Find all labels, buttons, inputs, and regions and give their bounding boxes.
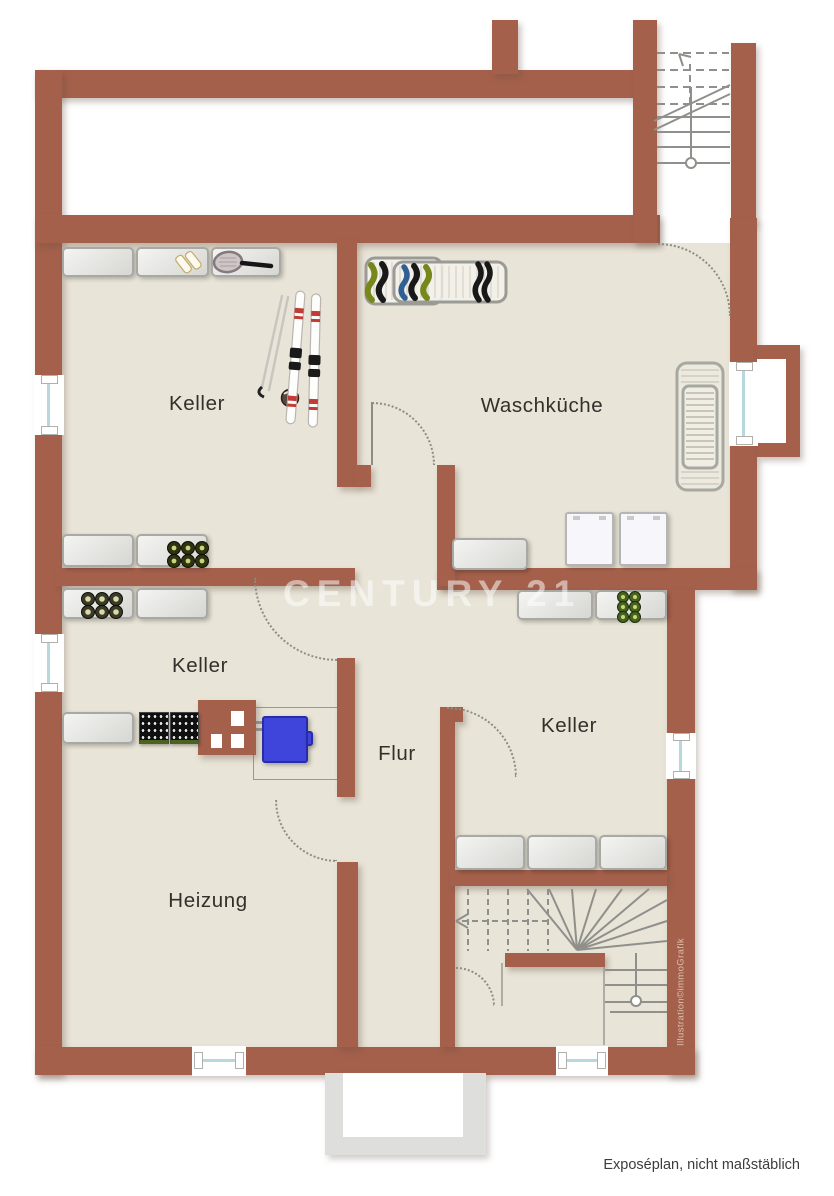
window-sill xyxy=(41,683,58,692)
window-sill xyxy=(235,1052,244,1069)
room-label-keller-right: Keller xyxy=(541,714,597,738)
window-sill xyxy=(558,1052,567,1069)
washing-machine-icon xyxy=(619,512,668,566)
wall xyxy=(492,20,518,74)
door-leaf xyxy=(371,402,373,465)
shelf xyxy=(62,247,134,277)
window-glazing xyxy=(47,642,50,684)
shelf xyxy=(211,247,281,277)
window-sill xyxy=(673,771,690,779)
chimney-flue xyxy=(231,734,244,748)
wall xyxy=(450,870,667,886)
chimney-flue xyxy=(231,711,244,726)
wall xyxy=(355,465,371,487)
window-glazing xyxy=(564,1059,600,1062)
washer-knob xyxy=(653,516,660,520)
window-sill xyxy=(194,1052,203,1069)
stair-spine-wall xyxy=(505,953,605,967)
window-sill xyxy=(41,634,58,643)
exterior-lightwell-inner xyxy=(343,1073,463,1137)
room-label-heizung: Heizung xyxy=(168,889,247,913)
shelf xyxy=(62,588,134,619)
wall xyxy=(633,20,657,243)
room-label-keller-top-left: Keller xyxy=(169,392,225,416)
staircase-top-icon xyxy=(654,53,730,168)
window-glazing xyxy=(47,383,50,427)
shelf xyxy=(136,588,208,619)
wall xyxy=(731,43,756,223)
window-glazing xyxy=(200,1059,238,1062)
window-sill xyxy=(41,426,58,435)
window-glazing xyxy=(679,741,682,772)
lightwell-right-inner xyxy=(757,359,786,443)
window-sill xyxy=(597,1052,606,1069)
window-sill xyxy=(736,362,753,371)
chimney-flue xyxy=(211,734,222,748)
shelf xyxy=(136,534,208,567)
wall xyxy=(337,658,355,797)
shelf xyxy=(599,835,667,870)
shelf xyxy=(452,538,528,570)
washer-knob xyxy=(573,516,580,520)
illustration-credit: Illustration©immoGrafik xyxy=(676,938,687,1046)
window-glazing xyxy=(742,371,745,437)
beverage-crates-icon xyxy=(170,712,199,744)
floor-area-lower xyxy=(55,575,667,1055)
wall xyxy=(35,215,660,243)
window-sill xyxy=(736,436,753,445)
shelf xyxy=(62,712,134,744)
window-sill xyxy=(673,733,690,741)
chimney xyxy=(198,700,256,755)
shelf xyxy=(595,590,667,620)
shelf xyxy=(62,534,134,567)
watermark: CENTURY 21 xyxy=(283,573,581,615)
room-label-flur: Flur xyxy=(378,742,416,766)
shelf xyxy=(136,247,209,277)
void-room xyxy=(62,98,633,218)
shelf xyxy=(527,835,597,870)
washer-knob xyxy=(627,516,634,520)
oil-tank-nub xyxy=(306,731,313,746)
washing-machine-icon xyxy=(565,512,614,566)
room-label-waschkueche: Waschküche xyxy=(481,394,604,418)
floor-plan: CENTURY 21 Keller Waschküche Keller Kell… xyxy=(0,0,834,1196)
window-sill xyxy=(41,375,58,384)
washer-knob xyxy=(599,516,606,520)
beverage-crates-icon xyxy=(139,712,169,744)
room-label-keller-middle: Keller xyxy=(172,654,228,678)
oil-tank-icon xyxy=(262,716,308,763)
plan-caption: Exposéplan, nicht maßstäblich xyxy=(603,1157,800,1173)
wall xyxy=(337,240,357,487)
wall xyxy=(337,862,358,1047)
shelf xyxy=(455,835,525,870)
wall xyxy=(35,70,640,98)
